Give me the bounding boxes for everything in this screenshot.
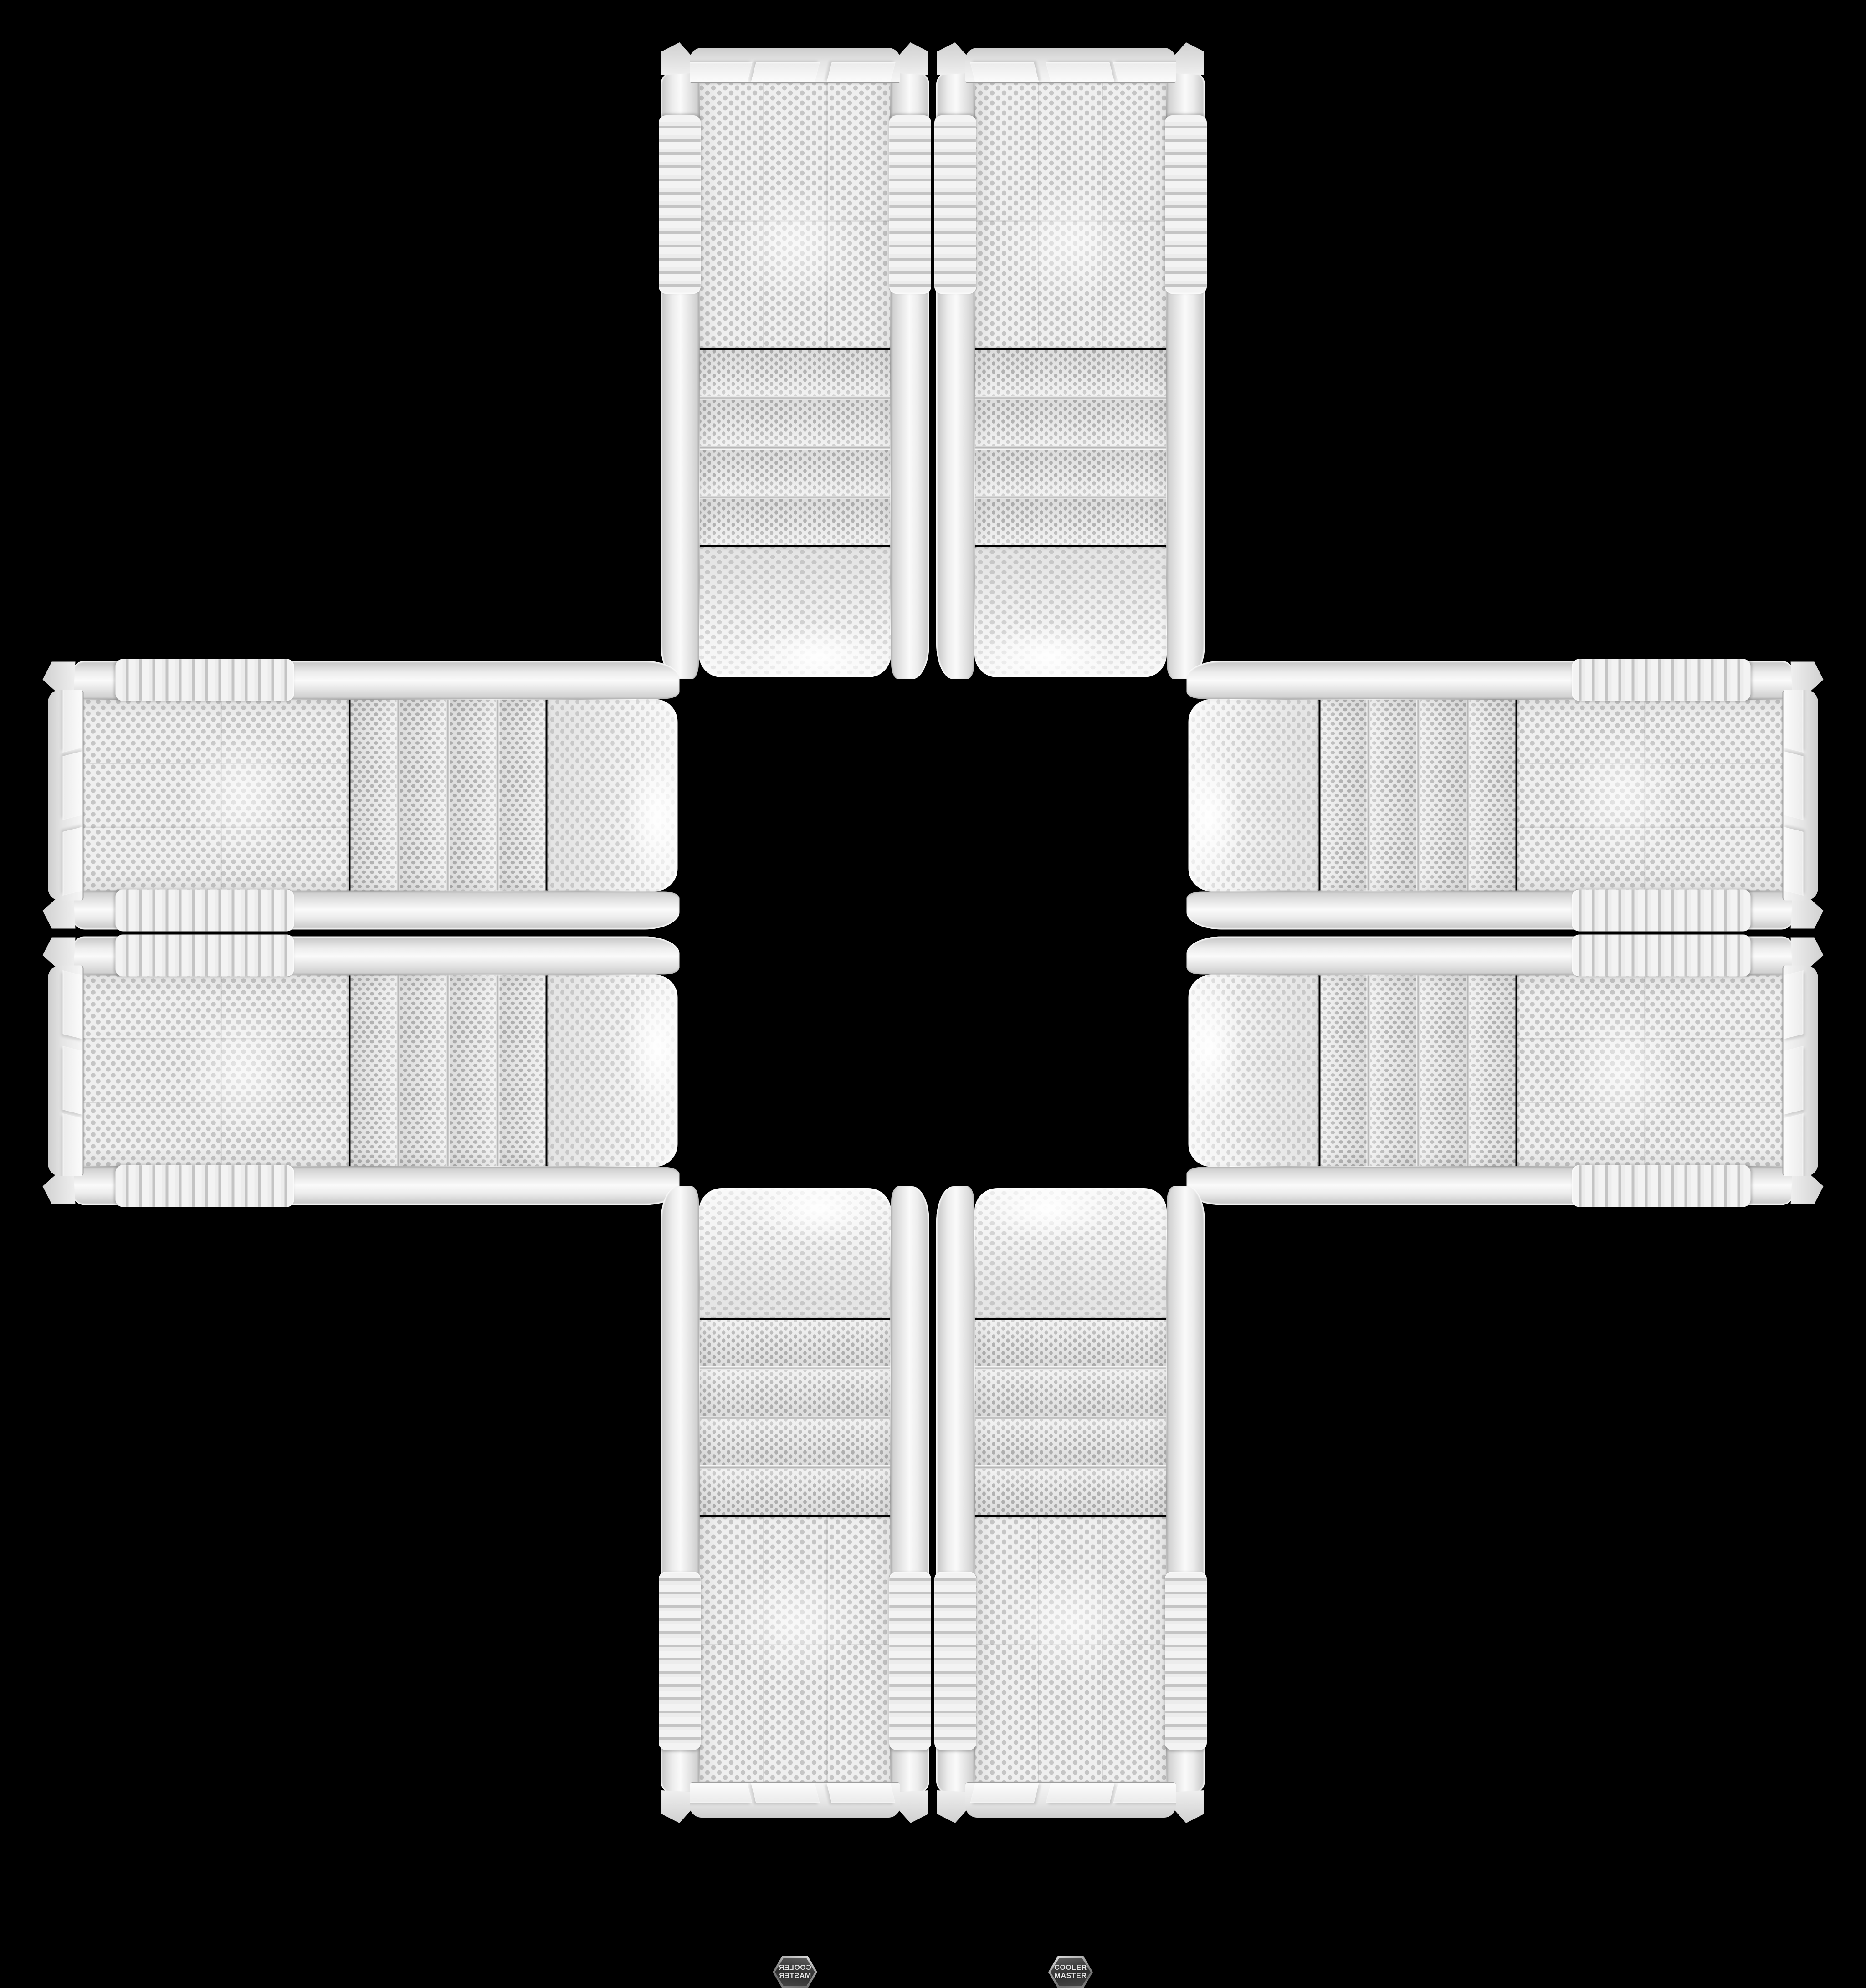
front-mesh-panel: COOLER MASTER (974, 1517, 1167, 1782)
drive-bay-cover (974, 350, 1167, 396)
drive-bay-cover (499, 974, 545, 1167)
drive-bay-cover (699, 1469, 891, 1515)
grip-ribs-right (115, 1165, 294, 1207)
pc-case-right-top: COOLER MASTER (1180, 661, 1825, 929)
pc-case-left-top: COOLER MASTER (41, 661, 686, 929)
top-mesh-hood (699, 547, 891, 677)
drive-bay-area (699, 1320, 891, 1515)
grip-ribs-left (889, 1572, 931, 1750)
bay-seam (1466, 699, 1469, 891)
cooler-master-logo-badge: COOLER MASTER (1048, 1956, 1093, 1988)
bay-seam (699, 446, 891, 450)
trim-notch (62, 827, 82, 896)
drive-bay-cover (974, 1370, 1167, 1416)
bay-seam (974, 1366, 1167, 1370)
drive-bay-cover (974, 499, 1167, 545)
bay-seam (396, 699, 400, 891)
drive-bay-cover (400, 699, 446, 891)
badge-face: COOLER MASTER (775, 1958, 815, 1986)
pc-case-bottom-right: COOLER MASTER (936, 1180, 1205, 1824)
front-mesh-panel: COOLER MASTER (1517, 699, 1782, 891)
bay-seam (496, 699, 499, 891)
side-rail-right (1167, 73, 1205, 679)
grip-ribs-left (934, 115, 976, 294)
bay-seam (1366, 974, 1370, 1167)
side-rail-right (73, 661, 679, 699)
bottom-trim-bar (48, 965, 83, 1176)
drive-bay-cover (699, 400, 891, 446)
trim-notch (1783, 690, 1803, 752)
bottom-trim-bar (1782, 690, 1818, 900)
trim-notch (751, 62, 820, 82)
drive-bay-cover (974, 1320, 1167, 1366)
pc-case-bottom-left: COOLER MASTER (661, 1180, 929, 1824)
bay-seam (974, 396, 1167, 400)
trim-notch (62, 1046, 82, 1115)
grip-ribs-left (889, 115, 931, 294)
grip-ribs-left (115, 889, 294, 931)
side-rail-left (73, 936, 679, 974)
badge-face: COOLER MASTER (1051, 1958, 1091, 1986)
grip-ribs-right (1572, 1165, 1750, 1207)
bottom-trim-bar (965, 48, 1176, 83)
bay-seam (446, 974, 450, 1167)
grip-ribs-right (1165, 115, 1207, 294)
drive-bay-cover (699, 1370, 891, 1416)
bottom-trim-bar (965, 1782, 1176, 1818)
pc-case-top-left: COOLER MASTER (661, 41, 929, 686)
grip-ribs-left (1572, 889, 1750, 931)
drive-bay-cover (1370, 699, 1416, 891)
drive-bay-cover (1420, 699, 1466, 891)
front-mesh-panel: COOLER MASTER (1517, 974, 1782, 1167)
bay-seam (699, 496, 891, 499)
trim-notch (1113, 62, 1176, 82)
drive-bay-area (350, 699, 545, 891)
drive-bay-area (350, 974, 545, 1167)
trim-notch (827, 1783, 896, 1803)
trim-notch (62, 690, 82, 752)
grip-ribs-right (1572, 659, 1750, 701)
side-rail-right (73, 1167, 679, 1205)
drive-bay-area (1320, 699, 1515, 891)
trim-notch (1783, 1046, 1803, 1115)
drive-bay-cover (974, 1419, 1167, 1465)
bay-seam (699, 396, 891, 400)
bay-seam (974, 1465, 1167, 1469)
trim-notch (751, 1783, 820, 1803)
grip-ribs-left (115, 934, 294, 976)
drive-bay-cover (1320, 974, 1366, 1167)
bottom-trim-bar (48, 690, 83, 900)
trim-notch (1783, 827, 1803, 896)
bay-seam (699, 1465, 891, 1469)
drive-bay-cover (1370, 974, 1416, 1167)
bottom-trim-bar (1782, 965, 1818, 1176)
drive-bay-area (974, 1320, 1167, 1515)
side-rail-right (1167, 1186, 1205, 1793)
pc-case-top-right: COOLER MASTER (936, 41, 1205, 686)
side-rail-left (891, 73, 929, 679)
drive-bay-cover (1469, 974, 1515, 1167)
side-rail-left (1186, 891, 1793, 929)
top-mesh-hood (1188, 699, 1318, 891)
bay-seam (1366, 699, 1370, 891)
trim-notch (690, 62, 752, 82)
bottom-trim-bar (690, 48, 900, 83)
trim-notch (62, 751, 82, 820)
badge-line-cooler: COOLER (1054, 1964, 1087, 1972)
bay-seam (974, 1416, 1167, 1419)
trim-notch (62, 970, 82, 1039)
top-mesh-hood (699, 1188, 891, 1318)
drive-bay-cover (699, 499, 891, 545)
bay-seam (699, 1366, 891, 1370)
top-mesh-hood (974, 547, 1167, 677)
badge-line-cooler: COOLER (779, 1964, 811, 1972)
drive-bay-cover (1469, 699, 1515, 891)
drive-bay-cover (699, 1419, 891, 1465)
grip-ribs-right (659, 1572, 701, 1750)
drive-bay-cover (1320, 699, 1366, 891)
trim-notch (1783, 751, 1803, 820)
pc-case-right-bottom: COOLER MASTER (1180, 936, 1825, 1205)
front-mesh-panel: COOLER MASTER (83, 699, 349, 891)
bay-seam (1466, 974, 1469, 1167)
drive-bay-cover (400, 974, 446, 1167)
bay-seam (446, 699, 450, 891)
bay-seam (1416, 974, 1420, 1167)
drive-bay-area (699, 350, 891, 545)
trim-notch (1113, 1783, 1176, 1803)
drive-bay-cover (974, 1469, 1167, 1515)
drive-bay-area (974, 350, 1167, 545)
top-mesh-hood (1188, 974, 1318, 1167)
side-rail-right (661, 1186, 699, 1793)
badge-line-master: MASTER (779, 1972, 811, 1980)
cooler-master-logo-badge: COOLER MASTER (773, 1956, 817, 1988)
trim-notch (1783, 1113, 1803, 1176)
drive-bay-cover (699, 350, 891, 396)
trim-notch (62, 1113, 82, 1176)
bay-seam (974, 496, 1167, 499)
bay-seam (699, 1416, 891, 1419)
bay-seam (974, 446, 1167, 450)
side-rail-left (936, 1186, 974, 1793)
front-mesh-panel: COOLER MASTER (699, 1517, 891, 1782)
grip-ribs-right (659, 115, 701, 294)
top-mesh-hood (974, 1188, 1167, 1318)
trim-notch (690, 1783, 752, 1803)
front-mesh-panel: COOLER MASTER (83, 974, 349, 1167)
drive-bay-cover (350, 699, 396, 891)
side-rail-right (1186, 1167, 1793, 1205)
drive-bay-cover (450, 974, 496, 1167)
drive-bay-cover (350, 974, 396, 1167)
bay-seam (496, 974, 499, 1167)
top-mesh-hood (547, 974, 677, 1167)
bay-seam (396, 974, 400, 1167)
front-mesh-panel: COOLER MASTER (699, 83, 891, 348)
front-mesh-panel: COOLER MASTER (974, 83, 1167, 348)
grip-ribs-left (934, 1572, 976, 1750)
side-rail-left (1186, 936, 1793, 974)
side-rail-right (661, 73, 699, 679)
top-mesh-hood (547, 699, 677, 891)
trim-notch (970, 1783, 1039, 1803)
grip-ribs-right (1165, 1572, 1207, 1750)
side-rail-right (1186, 661, 1793, 699)
drive-bay-cover (499, 699, 545, 891)
grip-ribs-right (115, 659, 294, 701)
bottom-trim-bar (690, 1782, 900, 1818)
case-collage-scene: COOLER MASTER COOLER MASTER (0, 0, 1866, 1866)
drive-bay-area (1320, 974, 1515, 1167)
drive-bay-cover (974, 400, 1167, 446)
drive-bay-cover (699, 450, 891, 496)
trim-notch (970, 62, 1039, 82)
badge-line-master: MASTER (1055, 1972, 1087, 1980)
trim-notch (1046, 62, 1115, 82)
pc-case-left-bottom: COOLER MASTER (41, 936, 686, 1205)
drive-bay-cover (450, 699, 496, 891)
trim-notch (827, 62, 896, 82)
drive-bay-cover (974, 450, 1167, 496)
trim-notch (1046, 1783, 1115, 1803)
side-rail-left (936, 73, 974, 679)
side-rail-left (73, 891, 679, 929)
drive-bay-cover (1420, 974, 1466, 1167)
bay-seam (1416, 699, 1420, 891)
grip-ribs-left (1572, 934, 1750, 976)
trim-notch (1783, 970, 1803, 1039)
drive-bay-cover (699, 1320, 891, 1366)
side-rail-left (891, 1186, 929, 1793)
